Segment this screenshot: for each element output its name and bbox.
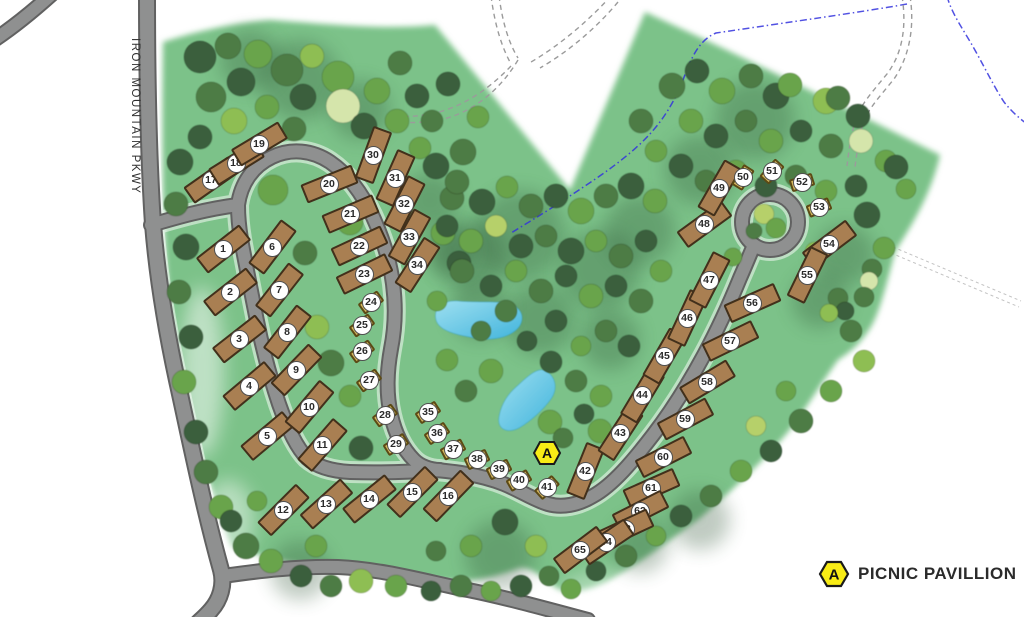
site-number-badge-59: 59: [676, 410, 695, 429]
site-number-badge-6: 6: [263, 238, 282, 257]
campground-site-map: 1234567891011121314151617181920212223242…: [0, 0, 1024, 617]
svg-text:A: A: [542, 445, 552, 461]
site-number-badge-19: 19: [250, 135, 269, 154]
tree: [320, 575, 342, 597]
tree: [643, 189, 667, 213]
site-number-badge-3: 3: [230, 330, 249, 349]
tree: [670, 505, 692, 527]
tree: [300, 44, 324, 68]
tree: [469, 189, 495, 215]
tree: [318, 350, 344, 376]
tree: [505, 260, 527, 282]
site-number-badge-25: 25: [353, 316, 372, 335]
tree: [255, 95, 279, 119]
site-number-badge-58: 58: [698, 373, 717, 392]
tree: [471, 321, 491, 341]
tree: [594, 184, 618, 208]
site-number-badge-9: 9: [287, 361, 306, 380]
tree: [436, 349, 458, 371]
tree: [579, 284, 603, 308]
tree: [196, 82, 226, 112]
tree: [339, 385, 361, 407]
tree: [561, 579, 581, 599]
site-number-badge-40: 40: [510, 471, 529, 490]
tree: [227, 68, 255, 96]
tree: [635, 230, 657, 252]
tree: [220, 510, 242, 532]
legend-pavilion-hexagon-icon: A: [818, 560, 850, 588]
tree: [650, 260, 672, 282]
tree: [685, 59, 709, 83]
tree: [221, 108, 247, 134]
site-number-badge-8: 8: [278, 323, 297, 342]
tree: [544, 184, 568, 208]
tree: [609, 244, 633, 268]
tree: [167, 149, 193, 175]
tree: [819, 134, 843, 158]
tree: [618, 335, 640, 357]
tree: [565, 370, 587, 392]
site-number-badge-29: 29: [387, 435, 406, 454]
site-number-badge-43: 43: [611, 424, 630, 443]
tree: [679, 109, 703, 133]
site-number-badge-24: 24: [362, 293, 381, 312]
tree: [700, 485, 722, 507]
tree: [840, 320, 862, 342]
tree: [766, 218, 786, 238]
site-number-badge-21: 21: [341, 205, 360, 224]
site-number-badge-45: 45: [655, 347, 674, 366]
tree: [615, 545, 637, 567]
terrain-layers: [0, 0, 1024, 617]
site-number-badge-55: 55: [798, 266, 817, 285]
tree: [854, 202, 880, 228]
tree: [349, 569, 373, 593]
site-number-badge-1: 1: [214, 240, 233, 259]
tree: [244, 40, 272, 68]
site-number-badge-53: 53: [810, 198, 829, 217]
site-number-badge-35: 35: [419, 403, 438, 422]
site-number-badge-34: 34: [408, 256, 427, 275]
tree: [849, 129, 873, 153]
site-number-badge-32: 32: [395, 195, 414, 214]
site-number-badge-47: 47: [700, 271, 719, 290]
tree: [539, 566, 559, 586]
tree: [629, 109, 653, 133]
tree: [481, 581, 501, 601]
site-number-badge-22: 22: [350, 237, 369, 256]
tree: [388, 51, 412, 75]
tree: [259, 549, 283, 573]
tree: [427, 291, 447, 311]
site-number-badge-49: 49: [710, 179, 729, 198]
site-number-badge-48: 48: [695, 215, 714, 234]
tree: [555, 265, 577, 287]
tree: [450, 139, 476, 165]
tree: [349, 436, 373, 460]
tree: [529, 279, 553, 303]
tree: [854, 287, 874, 307]
tree: [172, 370, 196, 394]
stream-line: [947, 0, 1024, 124]
tree: [709, 78, 735, 104]
site-number-badge-56: 56: [743, 294, 762, 313]
map-legend: A PICNIC PAVILLION: [818, 560, 1017, 588]
tree: [421, 110, 443, 132]
tree: [233, 533, 259, 559]
tree: [789, 409, 813, 433]
site-number-badge-39: 39: [490, 460, 509, 479]
tree: [525, 535, 547, 557]
tree: [194, 460, 218, 484]
site-number-badge-14: 14: [360, 490, 379, 509]
tree: [820, 304, 838, 322]
site-number-badge-27: 27: [360, 371, 379, 390]
tree: [884, 155, 908, 179]
tree: [739, 64, 763, 88]
site-number-badge-41: 41: [538, 478, 557, 497]
site-number-badge-51: 51: [763, 162, 782, 181]
pavilion-hexagon-icon: A: [532, 440, 562, 466]
site-number-badge-23: 23: [355, 265, 374, 284]
tree: [595, 320, 617, 342]
tree: [853, 350, 875, 372]
site-number-badge-20: 20: [320, 175, 339, 194]
tree: [179, 325, 203, 349]
tree: [558, 238, 584, 264]
tree: [188, 125, 212, 149]
site-number-badge-26: 26: [353, 342, 372, 361]
site-number-badge-10: 10: [300, 398, 319, 417]
tree: [669, 154, 693, 178]
tree: [730, 460, 752, 482]
site-number-badge-30: 30: [364, 146, 383, 165]
tree: [305, 535, 327, 557]
tree: [293, 241, 317, 265]
site-number-badge-16: 16: [439, 487, 458, 506]
site-number-badge-11: 11: [313, 436, 332, 455]
tree: [519, 194, 543, 218]
site-number-badge-28: 28: [376, 406, 395, 425]
tree: [568, 198, 594, 224]
site-number-badge-57: 57: [721, 332, 740, 351]
tree: [436, 215, 458, 237]
site-number-badge-60: 60: [654, 448, 673, 467]
tree: [517, 331, 537, 351]
tree: [759, 129, 783, 153]
tree: [492, 509, 518, 535]
tree: [271, 54, 303, 86]
parkway-road-label: IRON MOUNTAIN PKWY: [129, 38, 141, 194]
tree: [585, 230, 607, 252]
tree: [704, 124, 728, 148]
tree: [385, 109, 409, 133]
tree: [845, 175, 867, 197]
tree: [290, 84, 316, 110]
tree: [746, 223, 762, 239]
tree: [776, 381, 796, 401]
site-number-badge-42: 42: [576, 462, 595, 481]
tree: [184, 41, 216, 73]
site-number-badge-15: 15: [403, 483, 422, 502]
tree: [545, 310, 567, 332]
tree: [364, 78, 390, 104]
site-number-badge-7: 7: [270, 281, 289, 300]
tree: [509, 234, 533, 258]
tree: [590, 385, 612, 407]
site-number-badge-46: 46: [678, 309, 697, 328]
tree: [746, 416, 766, 436]
tree: [735, 110, 757, 132]
tree: [659, 73, 685, 99]
tree: [385, 575, 407, 597]
svg-text:A: A: [829, 567, 840, 584]
tree: [485, 215, 507, 237]
site-number-badge-13: 13: [317, 495, 336, 514]
tree: [460, 535, 482, 557]
tree: [571, 336, 591, 356]
tree: [896, 179, 916, 199]
tree: [173, 234, 199, 260]
tree: [540, 351, 562, 373]
tree: [450, 259, 474, 283]
site-number-badge-65: 65: [571, 541, 590, 560]
tree: [846, 104, 870, 128]
tree: [445, 170, 469, 194]
site-number-badge-5: 5: [258, 427, 277, 446]
tree: [836, 302, 854, 320]
tree: [574, 404, 594, 424]
tree: [290, 565, 312, 587]
tree: [405, 84, 429, 108]
site-number-badge-4: 4: [240, 377, 259, 396]
tree: [247, 491, 267, 511]
site-number-badge-54: 54: [820, 235, 839, 254]
tree: [510, 575, 532, 597]
tree: [450, 575, 472, 597]
site-number-badge-37: 37: [444, 440, 463, 459]
tree: [605, 275, 627, 297]
tree: [645, 140, 667, 162]
tree: [459, 229, 483, 253]
tree: [322, 61, 354, 93]
tree: [426, 541, 446, 561]
tree: [479, 359, 503, 383]
tree: [423, 153, 449, 179]
tree: [826, 86, 850, 110]
tree: [421, 581, 441, 601]
site-number-badge-50: 50: [734, 168, 753, 187]
tree: [184, 420, 208, 444]
site-number-badge-33: 33: [400, 228, 419, 247]
tree: [436, 72, 460, 96]
tree: [480, 275, 502, 297]
tree: [164, 192, 188, 216]
site-number-badge-36: 36: [428, 424, 447, 443]
site-number-badge-12: 12: [274, 501, 293, 520]
legend-label: PICNIC PAVILLION: [858, 564, 1017, 584]
tree: [455, 380, 477, 402]
site-number-badge-2: 2: [221, 283, 240, 302]
tree: [618, 173, 644, 199]
tree: [790, 120, 812, 142]
tree: [215, 33, 241, 59]
tree: [495, 300, 517, 322]
tree: [873, 237, 895, 259]
tree: [258, 175, 288, 205]
tree: [820, 380, 842, 402]
site-number-badge-52: 52: [793, 173, 812, 192]
tree: [778, 73, 802, 97]
site-number-badge-44: 44: [633, 386, 652, 405]
tree: [535, 225, 557, 247]
tree: [496, 176, 518, 198]
tree: [760, 440, 782, 462]
tree: [167, 280, 191, 304]
tree: [629, 289, 653, 313]
site-number-badge-38: 38: [468, 450, 487, 469]
tree: [467, 106, 489, 128]
picnic-pavilion-marker: A: [532, 440, 562, 471]
